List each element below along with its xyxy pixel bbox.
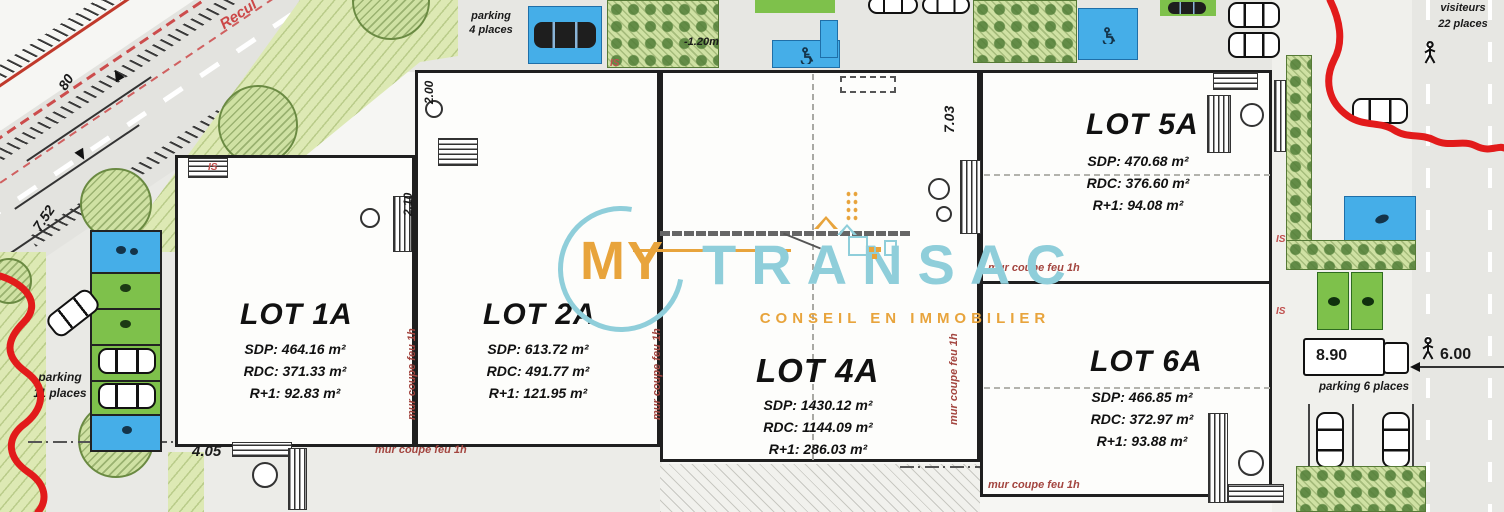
boundary-red-lines xyxy=(0,0,1504,512)
site-plan: 80 5.70 7.52 00 Recul parking 4 places I… xyxy=(0,0,1504,512)
